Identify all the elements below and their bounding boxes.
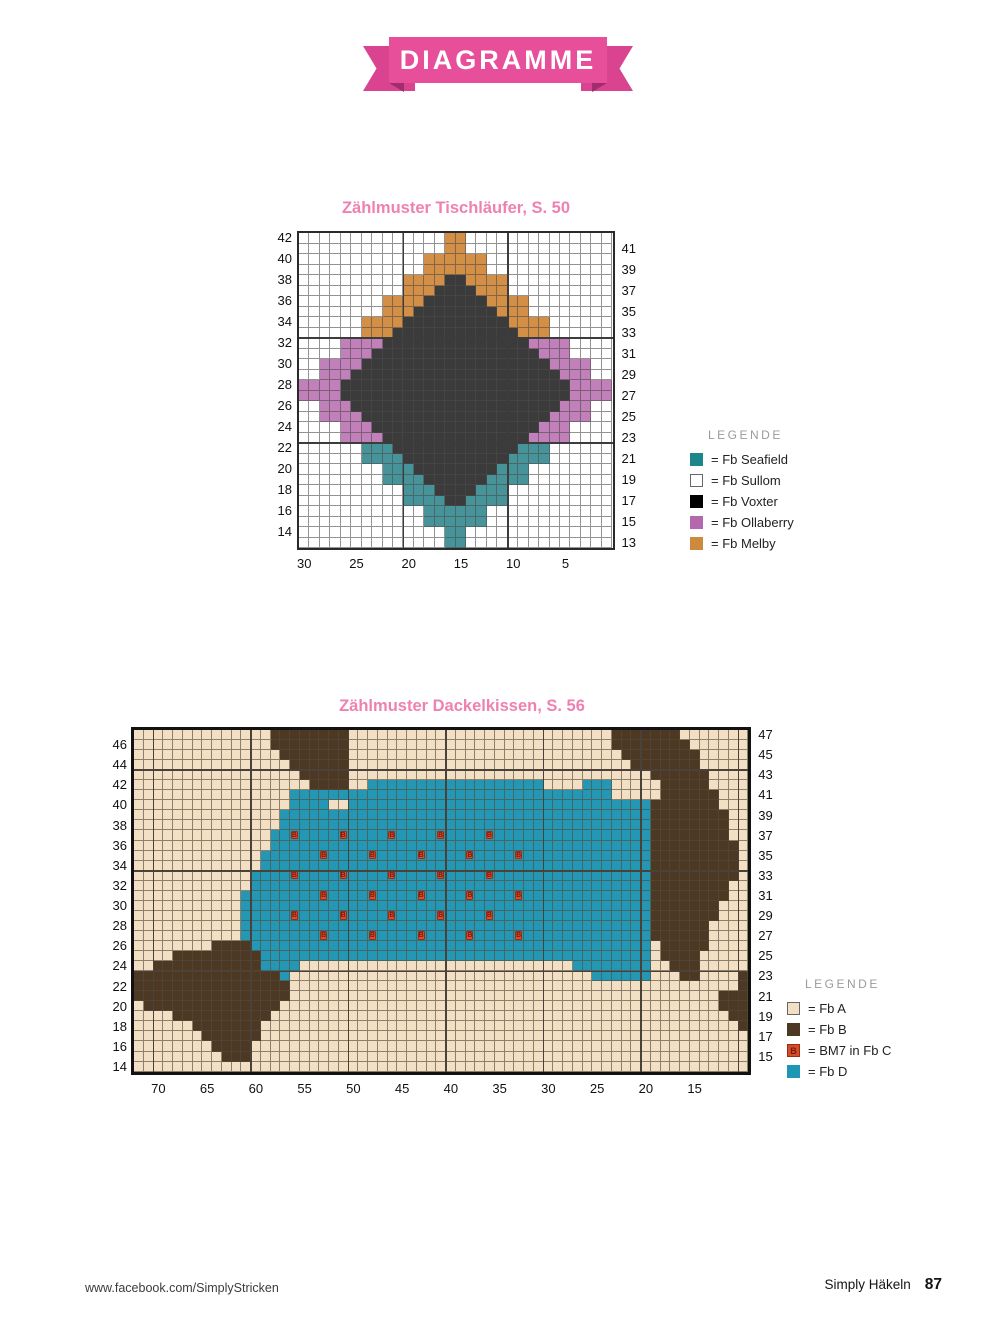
chart-row — [134, 1001, 748, 1011]
grid-cell — [261, 941, 271, 951]
grid-cell — [424, 412, 434, 423]
grid-cell — [339, 961, 349, 971]
grid-cell — [476, 233, 486, 244]
grid-cell — [583, 760, 593, 770]
grid-cell — [173, 730, 183, 740]
grid-cell — [456, 750, 466, 760]
grid-cell — [368, 750, 378, 760]
grid-cell — [719, 861, 729, 871]
grid-cell — [518, 328, 528, 339]
grid-cell — [341, 506, 351, 517]
grid-cell — [241, 871, 251, 881]
grid-cell — [670, 901, 680, 911]
grid-cell — [680, 1052, 690, 1062]
grid-cell — [261, 881, 271, 891]
grid-cell — [622, 770, 632, 780]
grid-cell — [251, 961, 261, 971]
grid-cell — [709, 760, 719, 770]
grid-cell — [417, 901, 427, 911]
grid-cell — [154, 911, 164, 921]
grid-cell — [529, 485, 539, 496]
grid-cell — [341, 328, 351, 339]
grid-cell — [563, 770, 573, 780]
grid-cell — [310, 750, 320, 760]
grid-cell — [729, 871, 739, 881]
grid-cell — [424, 422, 434, 433]
grid-cell — [651, 841, 661, 851]
grid-cell — [436, 800, 446, 810]
grid-cell — [261, 901, 271, 911]
grid-cell — [476, 443, 486, 454]
grid-cell — [134, 881, 144, 891]
grid-cell — [414, 296, 424, 307]
grid-cell — [670, 991, 680, 1001]
grid-cell — [446, 1062, 456, 1072]
grid-cell — [435, 485, 445, 496]
grid-cell — [456, 871, 466, 881]
grid-cell — [407, 871, 417, 881]
grid-cell — [241, 1031, 251, 1041]
grid-cell — [641, 901, 651, 911]
grid-cell — [341, 307, 351, 318]
grid-cell — [544, 1001, 554, 1011]
grid-cell — [173, 981, 183, 991]
grid-cell — [505, 1001, 515, 1011]
grid-cell — [539, 359, 549, 370]
grid-cell — [154, 750, 164, 760]
grid-cell — [690, 971, 700, 981]
grid-cell — [466, 871, 476, 881]
grid-cell — [612, 760, 622, 770]
grid-cell — [570, 349, 580, 360]
grid-cell — [651, 881, 661, 891]
grid-cell — [403, 349, 413, 360]
grid-cell — [505, 1011, 515, 1021]
grid-cell — [144, 941, 154, 951]
grid-cell — [690, 1021, 700, 1031]
column-number: 15 — [447, 556, 475, 571]
grid-cell — [446, 830, 456, 840]
grid-cell — [466, 981, 476, 991]
grid-cell — [539, 433, 549, 444]
grid-cell — [581, 527, 591, 538]
grid-cell — [534, 971, 544, 981]
grid-cell — [383, 380, 393, 391]
grid-cell — [476, 370, 486, 381]
grid-cell — [271, 1031, 281, 1041]
grid-cell — [290, 941, 300, 951]
grid-cell — [349, 851, 359, 861]
grid-cell — [330, 328, 340, 339]
grid-cell — [583, 1041, 593, 1051]
grid-cell — [358, 1041, 368, 1051]
grid-cell — [719, 981, 729, 991]
row-number: 22 — [262, 440, 292, 455]
grid-cell — [563, 800, 573, 810]
grid-cell — [144, 841, 154, 851]
grid-cell — [388, 931, 398, 941]
grid-cell — [524, 790, 534, 800]
grid-cell — [320, 286, 330, 297]
grid-cell — [435, 359, 445, 370]
grid-cell — [339, 981, 349, 991]
grid-cell — [719, 951, 729, 961]
row-number: 14 — [97, 1059, 127, 1074]
grid-cell — [329, 941, 339, 951]
grid-cell — [560, 538, 570, 549]
grid-cell — [358, 861, 368, 871]
grid-cell — [378, 951, 388, 961]
grid-cell — [514, 820, 524, 830]
grid-cell — [232, 1041, 242, 1051]
grid-cell — [729, 971, 739, 981]
grid-cell — [309, 265, 319, 276]
grid-cell — [670, 820, 680, 830]
grid-cell — [583, 851, 593, 861]
grid-cell — [544, 971, 554, 981]
grid-cell — [193, 1031, 203, 1041]
grid-cell — [563, 740, 573, 750]
grid-cell — [435, 443, 445, 454]
grid-cell — [553, 921, 563, 931]
grid-cell — [222, 1062, 232, 1072]
grid-cell — [154, 941, 164, 951]
grid-cell — [378, 891, 388, 901]
grid-cell — [495, 730, 505, 740]
grid-cell — [739, 891, 749, 901]
grid-cell — [368, 971, 378, 981]
grid-cell — [739, 921, 749, 931]
grid-cell — [280, 911, 290, 921]
grid-cell — [232, 941, 242, 951]
grid-cell — [310, 941, 320, 951]
grid-cell — [144, 961, 154, 971]
grid-cell — [154, 1011, 164, 1021]
grid-cell — [310, 1041, 320, 1051]
grid-cell — [583, 921, 593, 931]
grid-cell — [341, 317, 351, 328]
grid-cell — [592, 1062, 602, 1072]
grid-cell — [193, 861, 203, 871]
grid-cell — [427, 770, 437, 780]
grid-cell — [466, 810, 476, 820]
grid-cell — [739, 810, 749, 820]
grid-cell — [310, 810, 320, 820]
grid-cell — [505, 981, 515, 991]
grid-cell — [414, 370, 424, 381]
grid-cell — [544, 851, 554, 861]
grid-cell — [300, 851, 310, 861]
chart-row — [299, 412, 613, 423]
grid-cell — [362, 391, 372, 402]
grid-cell — [700, 851, 710, 861]
grid-cell — [544, 800, 554, 810]
grid-cell — [591, 307, 601, 318]
grid-cell — [690, 1062, 700, 1072]
grid-cell — [163, 800, 173, 810]
grid-cell — [362, 475, 372, 486]
grid-cell — [368, 871, 378, 881]
grid-cell — [670, 770, 680, 780]
grid-cell — [319, 871, 329, 881]
grid-cell — [163, 851, 173, 861]
grid-cell — [570, 370, 580, 381]
grid-cell — [719, 780, 729, 790]
grid-cell — [383, 233, 393, 244]
grid-cell — [378, 790, 388, 800]
column-number: 25 — [583, 1081, 611, 1096]
grid-cell — [631, 911, 641, 921]
grid-cell — [134, 790, 144, 800]
grid-cell — [212, 750, 222, 760]
grid-cell — [670, 851, 680, 861]
grid-cell — [251, 1052, 261, 1062]
grid-cell — [544, 1021, 554, 1031]
grid-cell — [581, 275, 591, 286]
grid-cell — [505, 1052, 515, 1062]
grid-cell — [241, 790, 251, 800]
grid-cell — [271, 790, 281, 800]
grid-cell — [476, 338, 486, 349]
grid-cell — [570, 538, 580, 549]
row-number: 26 — [97, 938, 127, 953]
row-number: 38 — [97, 818, 127, 833]
grid-cell — [349, 891, 359, 901]
grid-cell — [466, 496, 476, 507]
grid-cell — [690, 800, 700, 810]
grid-cell — [144, 1062, 154, 1072]
grid-cell — [622, 1021, 632, 1031]
grid-cell — [351, 475, 361, 486]
grid-cell — [690, 750, 700, 760]
grid-cell — [631, 1021, 641, 1031]
grid-cell — [397, 760, 407, 770]
grid-cell — [544, 911, 554, 921]
grid-cell — [362, 328, 372, 339]
grid-cell — [320, 443, 330, 454]
grid-cell — [320, 391, 330, 402]
grid-cell — [362, 412, 372, 423]
grid-cell — [641, 871, 651, 881]
legend-item: B= BM7 in Fb C — [787, 1040, 891, 1061]
grid-cell — [518, 296, 528, 307]
grid-cell — [581, 443, 591, 454]
grid-cell — [563, 931, 573, 941]
legend-label: = Fb B — [808, 1022, 847, 1037]
grid-cell — [251, 911, 261, 921]
column-number: 20 — [632, 1081, 660, 1096]
grid-cell — [544, 1031, 554, 1041]
grid-cell — [232, 830, 242, 840]
grid-cell — [368, 861, 378, 871]
grid-cell — [320, 422, 330, 433]
grid-cell — [641, 1011, 651, 1021]
grid-cell — [651, 1062, 661, 1072]
grid-cell — [154, 901, 164, 911]
grid-cell — [310, 991, 320, 1001]
grid-cell — [622, 780, 632, 790]
grid-cell — [241, 921, 251, 931]
grid-cell — [154, 961, 164, 971]
grid-cell — [414, 538, 424, 549]
grid-cell — [553, 871, 563, 881]
grid-cell — [271, 1021, 281, 1031]
grid-cell — [388, 1062, 398, 1072]
grid-cell — [232, 1062, 242, 1072]
grid-cell — [339, 851, 349, 861]
grid-cell — [241, 971, 251, 981]
grid-cell — [602, 911, 612, 921]
grid-cell — [202, 1052, 212, 1062]
grid-cell — [339, 800, 349, 810]
grid-cell — [271, 961, 281, 971]
grid-cell — [280, 1041, 290, 1051]
grid-cell — [514, 941, 524, 951]
grid-cell — [690, 830, 700, 840]
grid-cell — [508, 475, 518, 486]
grid-cell — [309, 307, 319, 318]
grid-cell — [573, 810, 583, 820]
legend-swatch-B — [787, 1023, 800, 1036]
grid-cell — [570, 338, 580, 349]
grid-cell — [709, 780, 719, 790]
grid-cell — [651, 770, 661, 780]
grid-cell — [202, 991, 212, 1001]
grid-cell — [602, 464, 612, 475]
grid-cell — [232, 951, 242, 961]
grid-cell — [300, 1001, 310, 1011]
grid-cell — [534, 851, 544, 861]
row-number: 34 — [97, 858, 127, 873]
grid-cell — [407, 770, 417, 780]
grid-cell — [299, 433, 309, 444]
grid-cell — [651, 941, 661, 951]
grid-cell — [134, 750, 144, 760]
grid-cell — [550, 538, 560, 549]
grid-cell — [534, 1052, 544, 1062]
grid-cell — [670, 830, 680, 840]
grid-cell — [383, 391, 393, 402]
grid-cell — [573, 780, 583, 790]
grid-cell — [134, 1001, 144, 1011]
grid-cell — [573, 760, 583, 770]
grid-cell — [631, 851, 641, 861]
grid-cell — [573, 1062, 583, 1072]
grid-cell — [514, 871, 524, 881]
grid-cell — [445, 475, 455, 486]
grid-cell — [330, 443, 340, 454]
grid-cell — [435, 244, 445, 255]
grid-cell — [388, 1021, 398, 1031]
grid-cell — [144, 800, 154, 810]
grid-cell — [435, 401, 445, 412]
grid-cell — [592, 931, 602, 941]
grid-cell — [570, 443, 580, 454]
grid-cell — [271, 921, 281, 931]
grid-cell — [232, 971, 242, 981]
grid-cell — [427, 931, 437, 941]
grid-cell — [144, 991, 154, 1001]
grid-cell — [739, 1001, 749, 1011]
grid-cell — [670, 1001, 680, 1011]
grid-cell — [232, 881, 242, 891]
grid-cell — [631, 1001, 641, 1011]
grid-cell — [739, 740, 749, 750]
grid-cell — [651, 901, 661, 911]
grid-cell — [290, 951, 300, 961]
grid-cell — [368, 790, 378, 800]
grid-cell — [183, 730, 193, 740]
grid-cell — [378, 961, 388, 971]
grid-cell — [280, 951, 290, 961]
grid-cell — [651, 851, 661, 861]
grid-cell — [560, 454, 570, 465]
grid-cell — [319, 981, 329, 991]
chart-row — [134, 961, 748, 971]
grid-cell — [251, 931, 261, 941]
grid-cell — [570, 391, 580, 402]
grid-cell — [670, 841, 680, 851]
grid-cell — [612, 911, 622, 921]
grid-cell — [602, 401, 612, 412]
grid-cell — [475, 800, 485, 810]
grid-cell — [417, 981, 427, 991]
grid-cell — [397, 981, 407, 991]
grid-cell — [183, 921, 193, 931]
grid-cell — [393, 307, 403, 318]
grid-cell — [497, 233, 507, 244]
bobble-cell: B — [388, 871, 398, 881]
grid-cell — [378, 810, 388, 820]
grid-cell — [591, 275, 601, 286]
column-number: 5 — [551, 556, 579, 571]
grid-cell — [518, 286, 528, 297]
grid-cell — [339, 750, 349, 760]
grid-cell — [581, 538, 591, 549]
grid-cell — [466, 841, 476, 851]
grid-cell — [690, 740, 700, 750]
grid-cell — [514, 951, 524, 961]
grid-cell — [280, 800, 290, 810]
grid-cell — [544, 740, 554, 750]
grid-cell — [445, 275, 455, 286]
grid-cell — [700, 901, 710, 911]
grid-cell — [690, 780, 700, 790]
grid-cell — [622, 750, 632, 760]
grid-cell — [427, 981, 437, 991]
grid-cell — [280, 750, 290, 760]
grid-cell — [436, 820, 446, 830]
row-number: 25 — [622, 409, 652, 424]
grid-cell — [212, 800, 222, 810]
grid-cell — [524, 981, 534, 991]
grid-cell — [592, 841, 602, 851]
grid-cell — [690, 1001, 700, 1011]
grid-cell — [368, 881, 378, 891]
grid-cell — [602, 981, 612, 991]
grid-cell — [466, 443, 476, 454]
grid-cell — [651, 921, 661, 931]
chart-row — [299, 244, 613, 255]
chart-row — [134, 941, 748, 951]
grid-cell — [680, 820, 690, 830]
grid-cell — [329, 770, 339, 780]
grid-cell — [251, 780, 261, 790]
grid-cell — [368, 730, 378, 740]
grid-cell — [641, 841, 651, 851]
grid-cell — [362, 275, 372, 286]
bobble-marker: B — [369, 851, 376, 860]
